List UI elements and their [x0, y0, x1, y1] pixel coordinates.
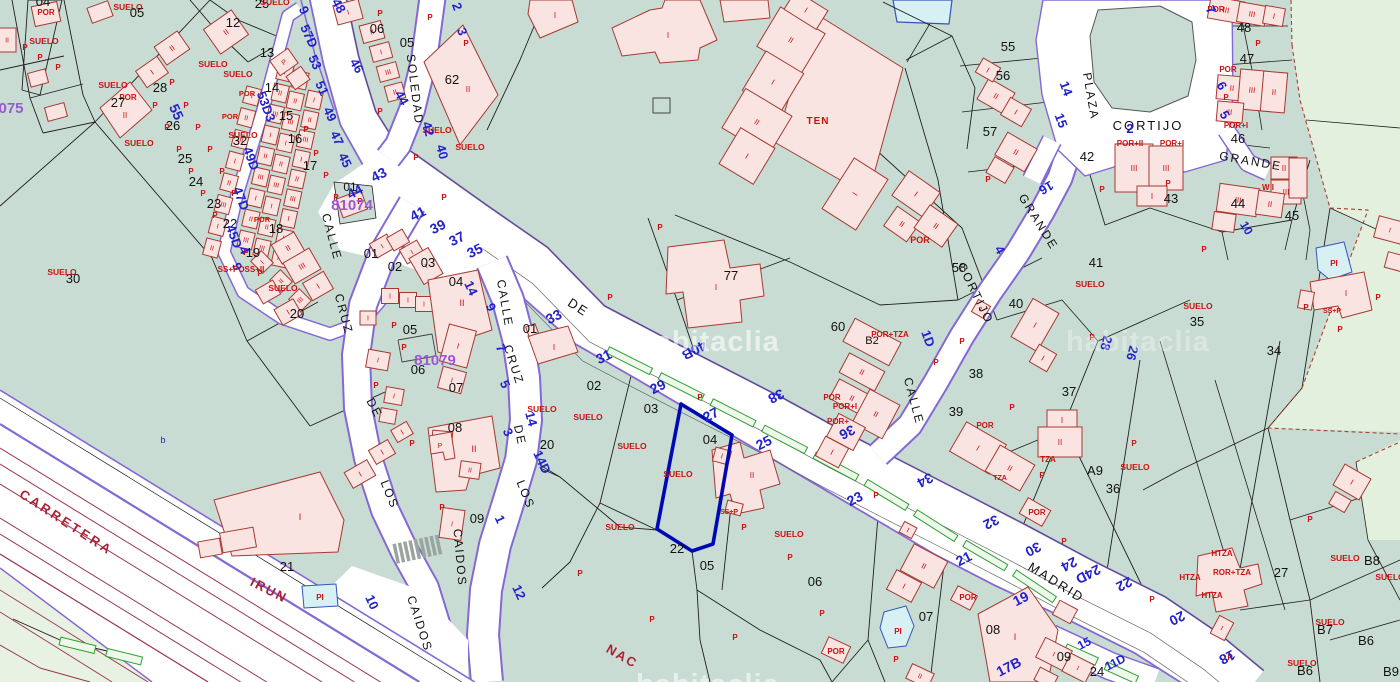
svg-text:SUELO: SUELO — [617, 441, 647, 451]
svg-text:46: 46 — [1231, 131, 1245, 146]
svg-text:habitaclia: habitaclia — [636, 669, 780, 682]
svg-text:P: P — [649, 615, 655, 624]
svg-text:P: P — [1165, 179, 1171, 188]
svg-text:18: 18 — [269, 221, 283, 236]
svg-text:55: 55 — [1001, 39, 1015, 54]
svg-text:56: 56 — [996, 68, 1010, 83]
svg-text:05: 05 — [700, 558, 714, 573]
svg-text:W I: W I — [1262, 183, 1274, 192]
svg-text:SUELO: SUELO — [268, 283, 298, 293]
svg-text:P: P — [22, 43, 28, 52]
svg-text:06: 06 — [370, 21, 384, 36]
svg-text:44: 44 — [1231, 196, 1245, 211]
svg-text:40: 40 — [1009, 296, 1023, 311]
svg-text:POR: POR — [959, 593, 977, 602]
svg-text:SUELO: SUELO — [228, 130, 258, 140]
svg-text:075: 075 — [0, 100, 24, 117]
svg-text:27: 27 — [111, 95, 125, 110]
svg-text:28: 28 — [153, 80, 167, 95]
svg-text:27: 27 — [1274, 565, 1288, 580]
svg-text:04: 04 — [449, 274, 463, 289]
svg-text:P: P — [657, 223, 663, 232]
svg-text:01: 01 — [364, 246, 378, 261]
svg-text:36: 36 — [1106, 481, 1120, 496]
svg-text:SUELO: SUELO — [1375, 572, 1400, 582]
svg-text:P: P — [164, 123, 170, 132]
svg-text:SUELO: SUELO — [1075, 279, 1105, 289]
svg-text:42: 42 — [1080, 149, 1094, 164]
svg-text:P: P — [169, 78, 175, 87]
svg-text:05: 05 — [400, 35, 414, 50]
svg-text:P: P — [1255, 39, 1261, 48]
svg-text:P: P — [1131, 439, 1137, 448]
svg-text:07: 07 — [449, 380, 463, 395]
svg-text:TZA: TZA — [993, 475, 1007, 482]
svg-text:P: P — [212, 211, 218, 220]
svg-text:SUELO: SUELO — [774, 529, 804, 539]
svg-text:P: P — [607, 293, 613, 302]
svg-text:P: P — [413, 153, 419, 162]
svg-text:II: II — [1271, 88, 1276, 97]
svg-text:SS+P: SS+P — [720, 509, 738, 516]
svg-text:21: 21 — [280, 559, 294, 574]
svg-text:P: P — [373, 381, 379, 390]
svg-text:SUELO: SUELO — [198, 59, 228, 69]
svg-text:I: I — [1345, 289, 1347, 298]
svg-text:P: P — [1009, 403, 1015, 412]
svg-text:I: I — [715, 283, 717, 292]
svg-text:P: P — [439, 503, 445, 512]
svg-text:III: III — [1131, 164, 1138, 173]
svg-text:P: P — [427, 13, 433, 22]
svg-text:08: 08 — [448, 420, 462, 435]
svg-text:POR: POR — [37, 8, 55, 17]
svg-text:ROR+TZA: ROR+TZA — [1213, 568, 1251, 577]
svg-text:60: 60 — [831, 319, 845, 334]
svg-text:41: 41 — [1089, 255, 1103, 270]
svg-text:38: 38 — [969, 366, 983, 381]
svg-text:b: b — [160, 435, 165, 445]
svg-text:48: 48 — [1237, 20, 1251, 35]
svg-text:CORTIJO: CORTIJO — [1113, 118, 1184, 133]
svg-text:01: 01 — [523, 321, 537, 336]
svg-text:62: 62 — [445, 72, 459, 87]
svg-text:P: P — [1303, 303, 1309, 312]
svg-text:P: P — [1201, 245, 1207, 254]
svg-text:SUELO: SUELO — [113, 2, 143, 12]
svg-text:P: P — [200, 189, 206, 198]
svg-text:POR+I: POR+I — [1224, 121, 1248, 130]
svg-text:POR: POR — [1028, 508, 1046, 517]
svg-text:I: I — [423, 301, 425, 308]
svg-text:POR: POR — [823, 393, 841, 402]
svg-text:PI: PI — [316, 593, 324, 602]
svg-text:TEN: TEN — [807, 116, 830, 127]
svg-text:P: P — [401, 343, 407, 352]
svg-text:P: P — [463, 39, 469, 48]
svg-text:I: I — [407, 297, 409, 304]
svg-text:06: 06 — [808, 574, 822, 589]
svg-text:P: P — [787, 553, 793, 562]
svg-text:II: II — [750, 471, 754, 480]
svg-text:I: I — [367, 315, 369, 322]
svg-text:P: P — [893, 655, 899, 664]
svg-text:I: I — [667, 31, 669, 40]
svg-text:P: P — [1223, 93, 1229, 102]
svg-text:PI: PI — [1330, 259, 1338, 268]
svg-text:P: P — [1307, 515, 1313, 524]
svg-text:15: 15 — [279, 108, 293, 123]
svg-text:P: P — [1337, 325, 1343, 334]
svg-text:P: P — [409, 439, 415, 448]
svg-text:02: 02 — [587, 378, 601, 393]
svg-text:I: I — [553, 343, 555, 352]
svg-text:P: P — [1039, 471, 1045, 480]
svg-text:SUELO: SUELO — [223, 69, 253, 79]
svg-text:II: II — [1282, 164, 1286, 173]
svg-text:POR: POR — [239, 89, 256, 98]
svg-text:P: P — [1061, 537, 1067, 546]
svg-text:P: P — [741, 523, 747, 532]
svg-text:P: P — [438, 443, 443, 450]
svg-text:08: 08 — [986, 622, 1000, 637]
svg-text:03: 03 — [421, 255, 435, 270]
svg-text:P: P — [732, 633, 738, 642]
svg-text:SUELO: SUELO — [124, 138, 154, 148]
svg-text:P: P — [37, 53, 43, 62]
svg-text:57: 57 — [983, 124, 997, 139]
svg-text:SUELO: SUELO — [47, 267, 77, 277]
svg-text:I: I — [1151, 192, 1153, 201]
svg-text:POR: POR — [1219, 65, 1237, 74]
svg-text:P: P — [313, 149, 319, 158]
svg-text:B6: B6 — [1358, 633, 1374, 648]
svg-text:12: 12 — [226, 15, 240, 30]
svg-text:SUELO: SUELO — [29, 36, 59, 46]
svg-text:SUELO: SUELO — [605, 522, 635, 532]
svg-text:POR+I: POR+I — [1160, 139, 1184, 148]
svg-text:39: 39 — [949, 404, 963, 419]
svg-text:II: II — [471, 444, 476, 454]
svg-text:POR+II: POR+II — [1117, 139, 1143, 148]
svg-text:P: P — [207, 145, 213, 154]
svg-text:SUELO: SUELO — [1330, 553, 1360, 563]
svg-text:III: III — [1163, 164, 1170, 173]
svg-text:HTZA: HTZA — [1211, 549, 1233, 558]
svg-text:P: P — [391, 321, 397, 330]
svg-text:SUELO: SUELO — [1120, 462, 1150, 472]
svg-text:I: I — [1014, 632, 1017, 642]
svg-text:SS+POSS+II: SS+POSS+II — [218, 265, 265, 274]
svg-text:45: 45 — [1285, 208, 1299, 223]
svg-text:P: P — [697, 393, 703, 402]
svg-text:POR: POR — [910, 235, 930, 245]
svg-text:SUELO: SUELO — [1183, 301, 1213, 311]
svg-text:POR: POR — [254, 215, 271, 224]
svg-text:17: 17 — [303, 158, 317, 173]
svg-text:47: 47 — [1240, 51, 1254, 66]
svg-text:04: 04 — [703, 432, 717, 447]
svg-text:34: 34 — [1267, 343, 1281, 358]
svg-text:SUELO: SUELO — [98, 80, 128, 90]
svg-text:23: 23 — [207, 196, 221, 211]
svg-text:P: P — [377, 9, 383, 18]
svg-text:77: 77 — [724, 268, 738, 283]
svg-text:II: II — [1058, 438, 1062, 447]
svg-text:SUELO: SUELO — [1287, 658, 1317, 668]
svg-text:POR: POR — [976, 421, 994, 430]
svg-text:P: P — [441, 193, 447, 202]
svg-text:II: II — [5, 37, 9, 44]
svg-text:P: P — [195, 123, 201, 132]
svg-text:SS+P: SS+P — [1323, 308, 1341, 315]
svg-text:P: P — [323, 171, 329, 180]
svg-text:I: I — [299, 512, 302, 522]
svg-text:24: 24 — [189, 174, 203, 189]
svg-text:16: 16 — [288, 131, 302, 146]
svg-text:I: I — [554, 11, 556, 20]
svg-text:B9: B9 — [1383, 664, 1399, 679]
svg-text:09: 09 — [1057, 649, 1071, 664]
svg-text:P: P — [577, 569, 583, 578]
svg-text:04: 04 — [36, 0, 50, 9]
svg-text:P: P — [303, 125, 309, 134]
svg-text:HTZA: HTZA — [1179, 573, 1201, 582]
svg-text:P: P — [55, 63, 61, 72]
svg-text:POR+TZA: POR+TZA — [871, 330, 909, 339]
svg-text:II: II — [466, 85, 470, 94]
svg-text:05: 05 — [403, 322, 417, 337]
svg-text:SUELO: SUELO — [260, 0, 290, 7]
svg-text:PI: PI — [894, 627, 902, 636]
svg-text:SUELO: SUELO — [573, 412, 603, 422]
svg-text:habitaclia: habitaclia — [1066, 326, 1210, 358]
svg-text:24: 24 — [1090, 664, 1104, 679]
svg-text:habitaclia: habitaclia — [636, 326, 780, 358]
svg-text:I: I — [1061, 416, 1063, 425]
svg-text:P: P — [985, 175, 991, 184]
svg-text:HTZA: HTZA — [1201, 591, 1223, 600]
svg-text:P: P — [1099, 185, 1105, 194]
svg-text:II: II — [459, 298, 464, 308]
svg-text:P: P — [188, 167, 194, 176]
svg-text:P: P — [176, 145, 182, 154]
svg-text:P: P — [152, 101, 158, 110]
svg-text:07: 07 — [919, 609, 933, 624]
svg-text:POR: POR — [827, 647, 845, 656]
svg-text:P: P — [873, 491, 879, 500]
svg-text:III: III — [1248, 86, 1255, 96]
svg-text:SUELO: SUELO — [663, 469, 693, 479]
svg-text:43: 43 — [1164, 191, 1178, 206]
svg-text:P: P — [1375, 293, 1381, 302]
svg-text:22: 22 — [670, 541, 684, 556]
svg-text:09: 09 — [470, 511, 484, 526]
svg-text:I: I — [389, 293, 391, 300]
svg-text:POR: POR — [222, 112, 239, 121]
svg-text:SUELO: SUELO — [1315, 617, 1345, 627]
svg-text:P: P — [377, 107, 383, 116]
svg-text:A9: A9 — [1087, 463, 1103, 478]
svg-text:P: P — [959, 337, 965, 346]
svg-text:POR+I: POR+I — [833, 402, 857, 411]
svg-text:P: P — [933, 358, 939, 367]
svg-text:SUELO: SUELO — [455, 142, 485, 152]
svg-text:P: P — [333, 193, 339, 202]
svg-text:P: P — [1149, 595, 1155, 604]
svg-text:02: 02 — [388, 259, 402, 274]
svg-text:13: 13 — [260, 45, 274, 60]
svg-text:2: 2 — [1126, 121, 1133, 136]
svg-text:20: 20 — [290, 306, 304, 321]
svg-text:03: 03 — [644, 401, 658, 416]
svg-text:81079: 81079 — [414, 352, 456, 369]
svg-text:P: P — [819, 609, 825, 618]
svg-text:TZA: TZA — [1040, 455, 1056, 464]
svg-text:P: P — [219, 167, 225, 176]
svg-text:II: II — [123, 111, 127, 120]
svg-text:37: 37 — [1062, 384, 1076, 399]
svg-text:B8: B8 — [1364, 553, 1380, 568]
